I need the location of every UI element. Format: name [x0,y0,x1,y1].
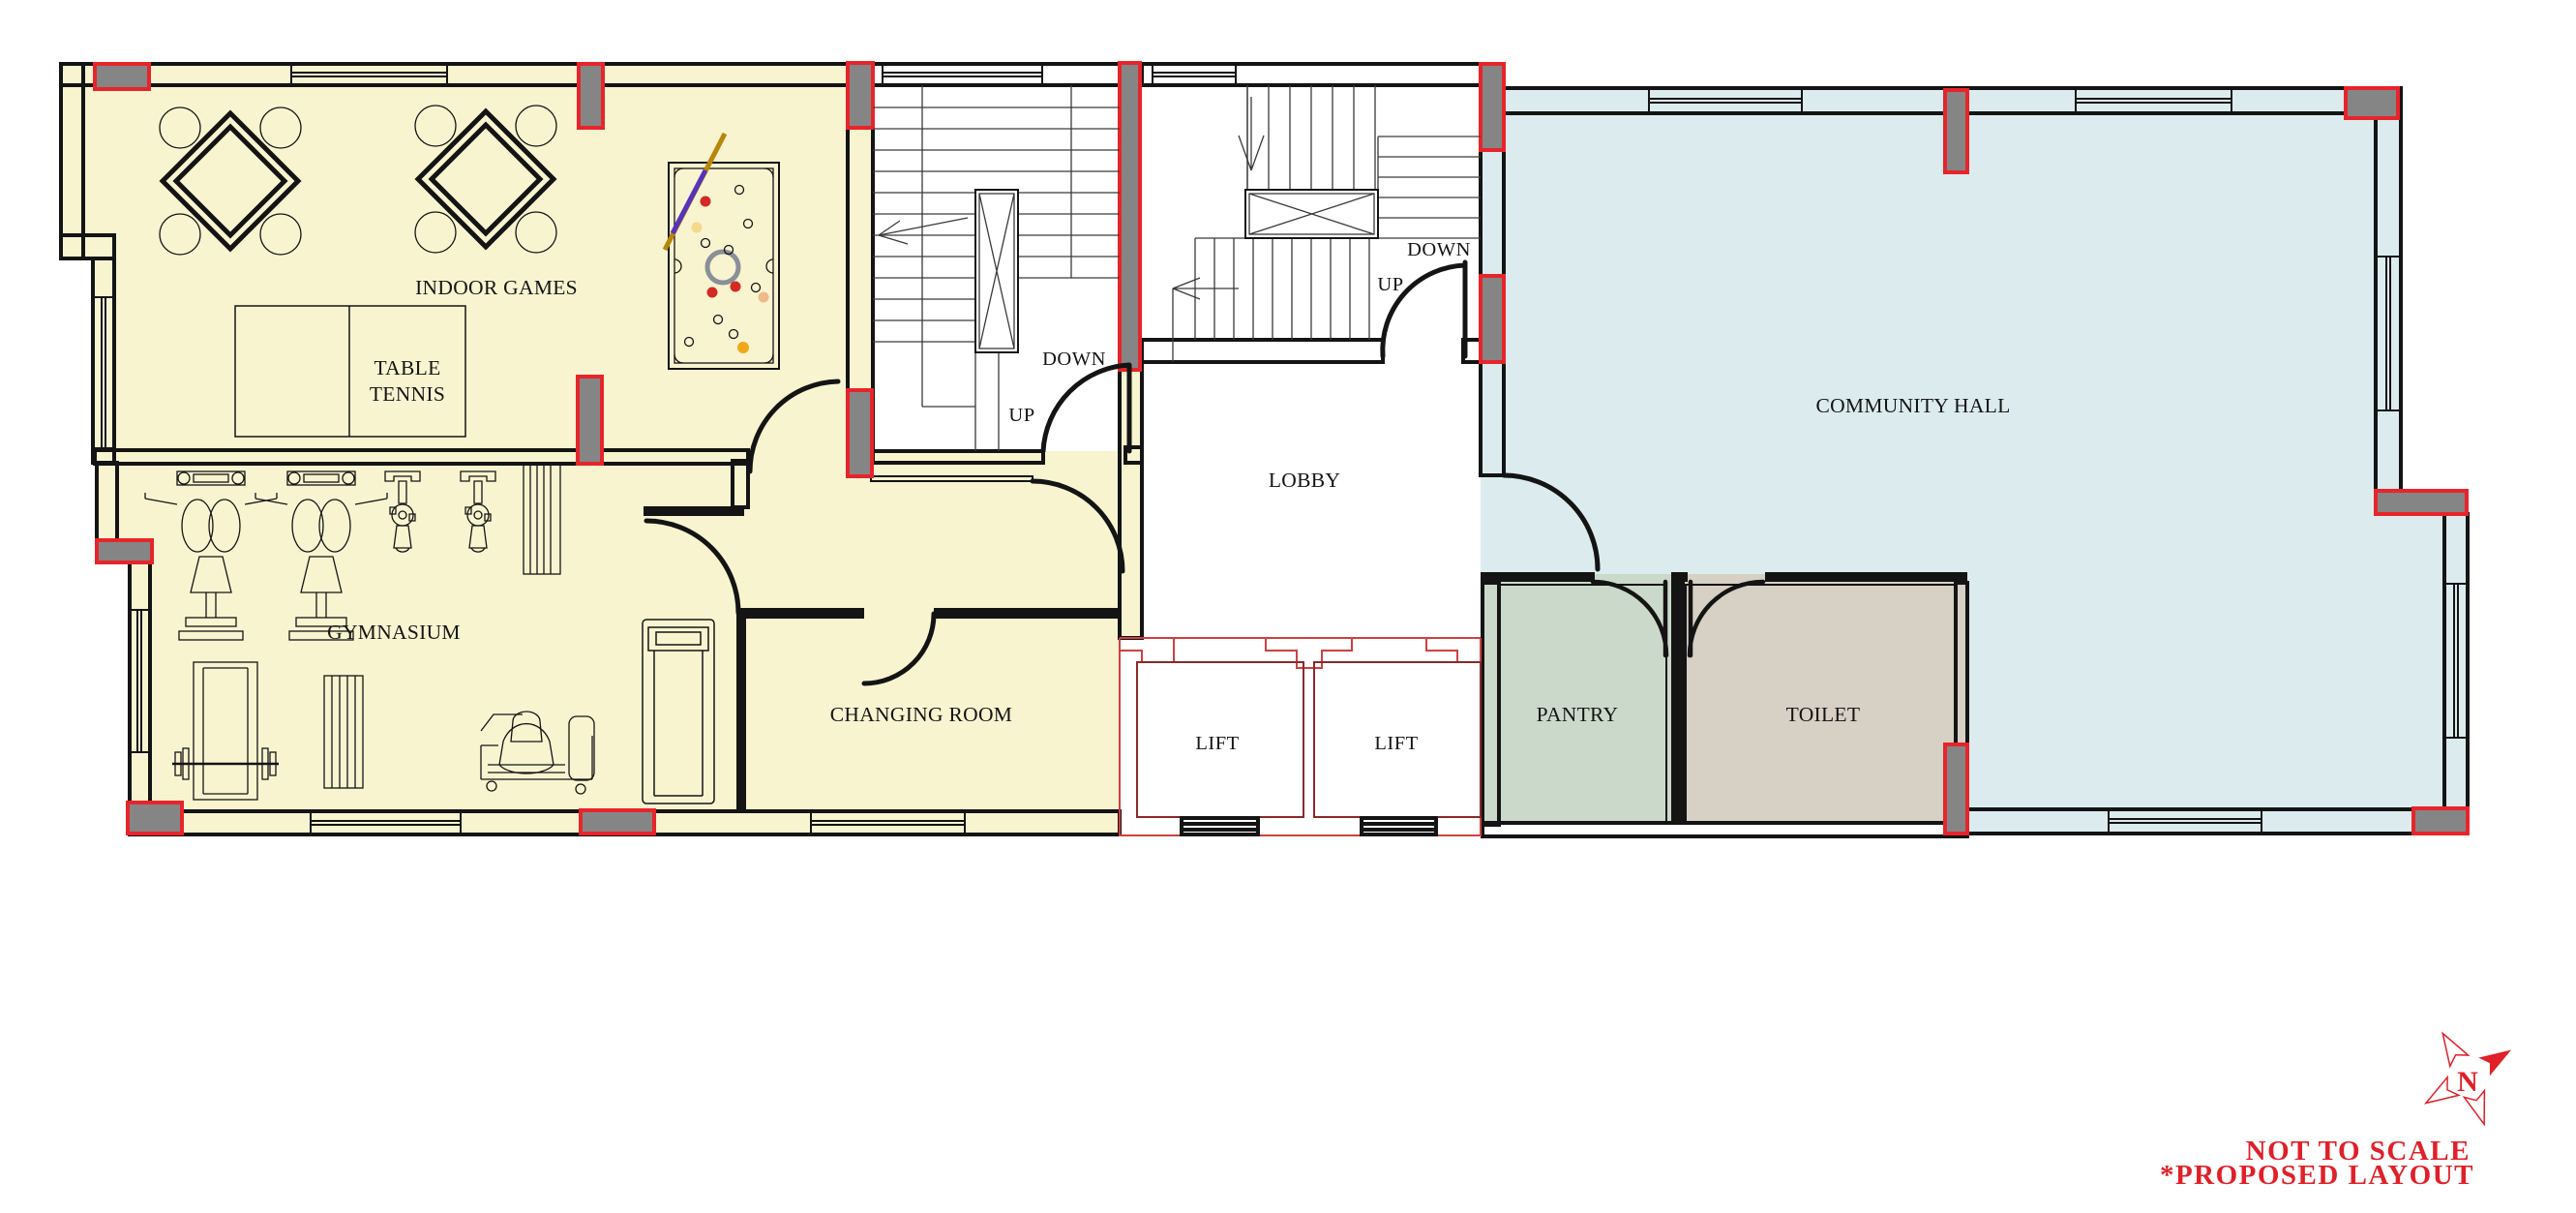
svg-text:TENNIS: TENNIS [370,382,445,406]
svg-text:COMMUNITY HALL: COMMUNITY HALL [1815,394,2010,417]
svg-text:CHANGING ROOM: CHANGING ROOM [830,703,1012,726]
svg-text:UP: UP [1008,405,1034,426]
svg-text:TOILET: TOILET [1786,703,1861,726]
svg-text:GYMNASIUM: GYMNASIUM [327,621,461,644]
svg-text:N: N [2457,1066,2478,1098]
svg-text:LOBBY: LOBBY [1269,469,1340,492]
svg-text:LIFT: LIFT [1374,733,1418,754]
svg-text:*PROPOSED LAYOUT: *PROPOSED LAYOUT [2160,1160,2474,1191]
svg-text:DOWN: DOWN [1407,239,1471,260]
svg-text:TABLE: TABLE [374,356,440,379]
svg-text:DOWN: DOWN [1042,349,1106,370]
svg-text:LIFT: LIFT [1195,733,1239,754]
svg-text:UP: UP [1377,274,1403,295]
svg-text:PANTRY: PANTRY [1537,703,1619,726]
svg-text:INDOOR GAMES: INDOOR GAMES [415,276,578,299]
